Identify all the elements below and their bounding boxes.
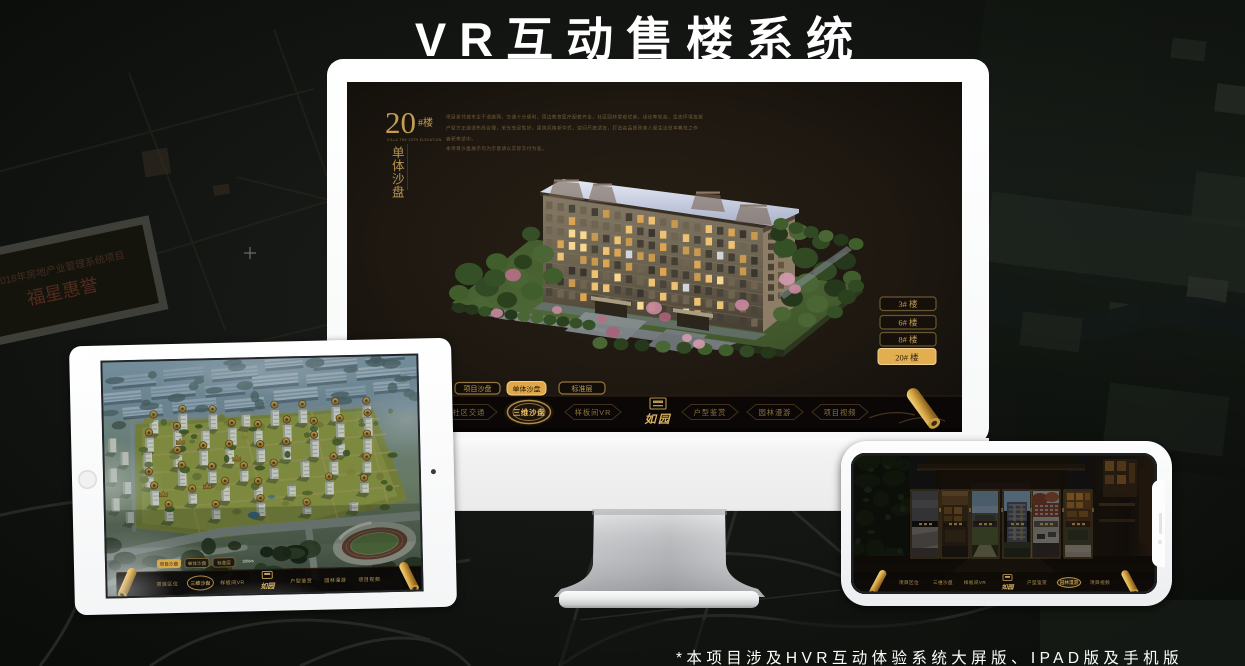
svg-text:20: 20	[385, 105, 416, 140]
svg-text:盘: 盘	[392, 185, 405, 200]
svg-text:沙: 沙	[392, 172, 405, 186]
svg-text:如园: 如园	[1001, 583, 1014, 591]
svg-text:户型鉴赏: 户型鉴赏	[694, 408, 727, 417]
svg-text:园林漫游: 园林漫游	[324, 577, 346, 584]
svg-text:#楼: #楼	[418, 116, 433, 129]
svg-text:20# 楼: 20# 楼	[895, 353, 919, 363]
svg-text:项目沙盘: 项目沙盘	[464, 384, 492, 393]
svg-text:8# 楼: 8# 楼	[898, 335, 918, 345]
svg-text:3# 楼: 3# 楼	[898, 299, 918, 309]
svg-text:容积率适中。: 容积率适中。	[446, 136, 476, 143]
svg-text:本项目沙盘展示均为示意请以实际交付为准。: 本项目沙盘展示均为示意请以实际交付为准。	[446, 145, 547, 152]
svg-text:三维沙盘: 三维沙盘	[513, 407, 545, 417]
svg-text:园林漫游: 园林漫游	[759, 408, 792, 417]
svg-text:户型鉴赏: 户型鉴赏	[1027, 579, 1047, 586]
svg-text:社区交通: 社区交通	[453, 408, 486, 417]
svg-text:项目视频: 项目视频	[1090, 579, 1110, 586]
svg-text:项目视频: 项目视频	[824, 408, 857, 417]
svg-text:1566m: 1566m	[242, 559, 254, 563]
svg-text:三维沙盘: 三维沙盘	[933, 579, 953, 586]
svg-text:VILLA THE 20TH ELEVATION: VILLA THE 20TH ELEVATION	[387, 138, 442, 142]
svg-text:园林漫游: 园林漫游	[1060, 579, 1079, 586]
svg-text:单: 单	[392, 146, 405, 160]
svg-text:项目视频: 项目视频	[358, 576, 380, 583]
svg-text:样板间VR: 样板间VR	[964, 579, 986, 586]
svg-text:项目区位: 项目区位	[899, 579, 919, 586]
svg-text:单体沙盘: 单体沙盘	[513, 385, 541, 394]
svg-text:标准层: 标准层	[572, 384, 593, 393]
svg-text:样板间VR: 样板间VR	[575, 408, 612, 417]
svg-text:户型方正通透布局合理，采光充足性好，建筑风格新中式，空间尺度: 户型方正通透布局合理，采光充足性好，建筑风格新中式，空间尺度适宜，打造高品质改善…	[446, 125, 698, 132]
svg-text:如园: 如园	[645, 413, 672, 426]
svg-text:体: 体	[392, 159, 405, 173]
svg-text:项目紧邻城市主干道路网，交通十分便利，周边教育医疗配套齐全，: 项目紧邻城市主干道路网，交通十分便利，周边教育医疗配套齐全，社区园林景观优美，绿…	[446, 114, 703, 121]
svg-text:6# 楼: 6# 楼	[898, 318, 918, 328]
